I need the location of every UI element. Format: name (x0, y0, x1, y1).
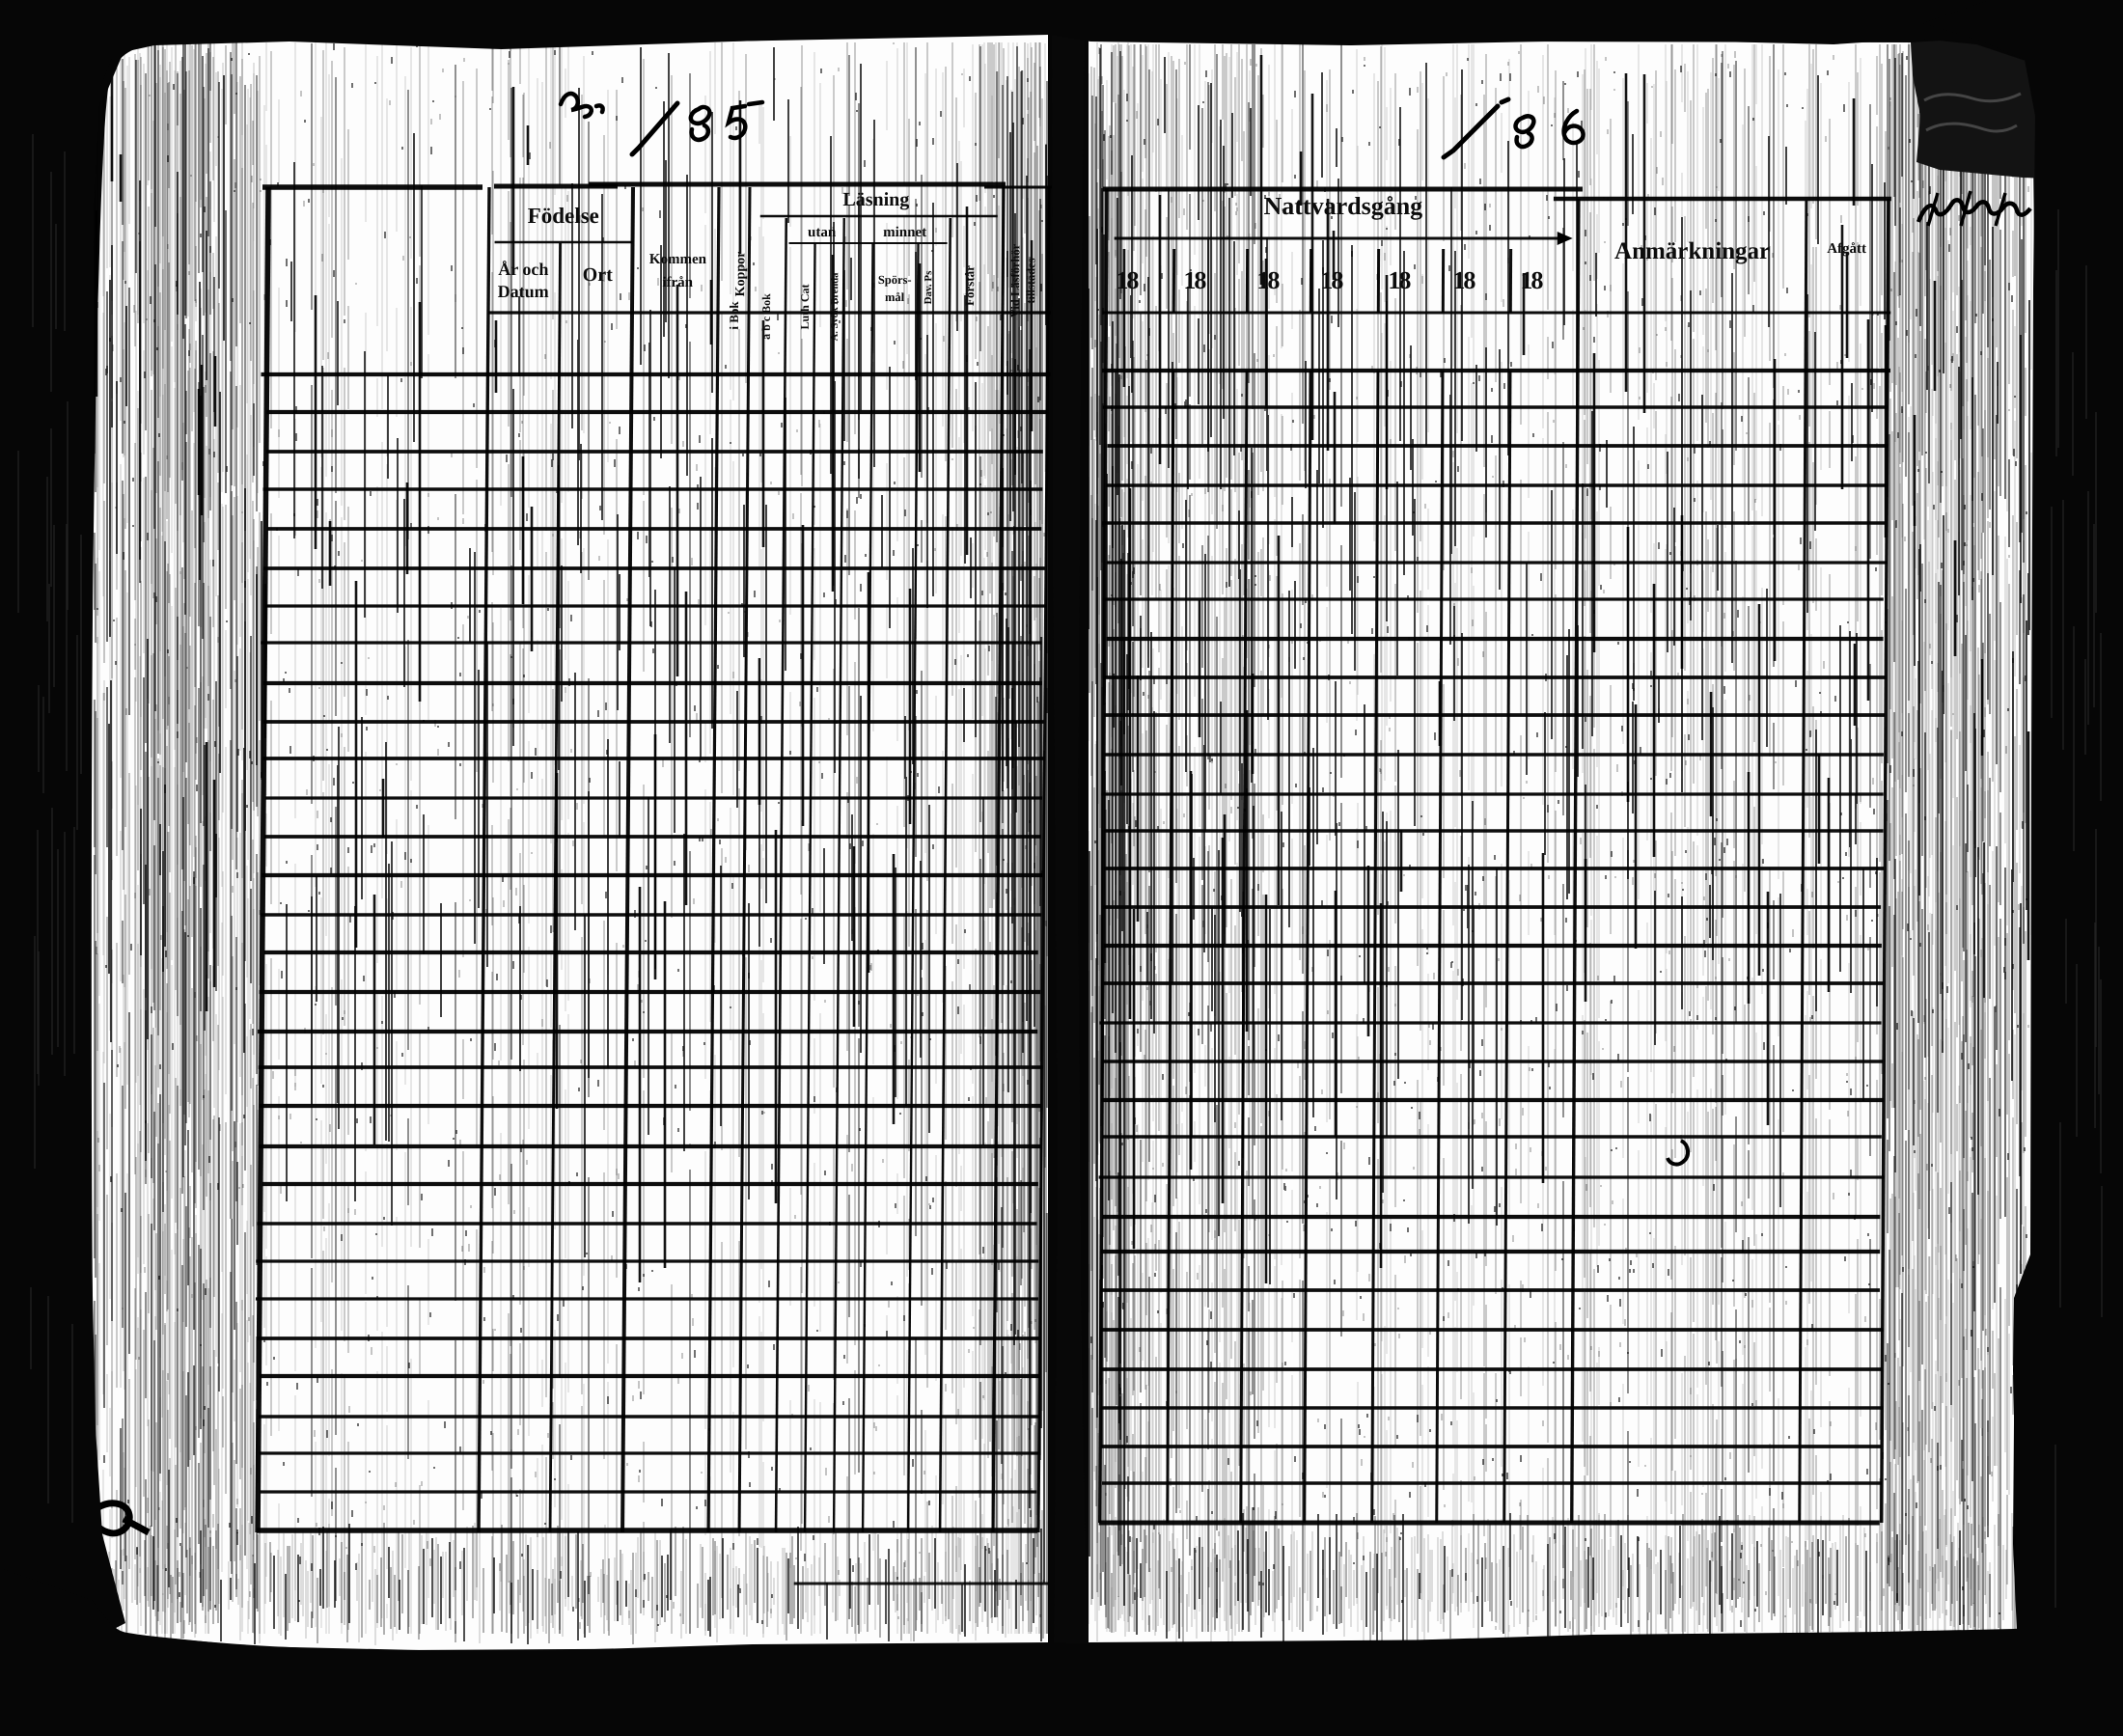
svg-text:Dav. Ps: Dav. Ps (923, 270, 934, 305)
svg-text:mål: mål (885, 290, 905, 304)
svg-text:Afgått: Afgått (1827, 241, 1866, 257)
svg-text:Födelse: Födelse (528, 204, 599, 228)
svg-text:Ort: Ort (583, 264, 614, 286)
svg-text:i Bok: i Bok (727, 301, 741, 330)
svg-text:Läsning: Läsning (842, 189, 909, 210)
svg-text:utan: utan (808, 225, 837, 240)
svg-text:Luth Cat: Luth Cat (798, 284, 812, 329)
svg-text:A. Svök Brenda: A. Svök Brenda (830, 272, 841, 341)
svg-text:minnet: minnet (883, 225, 926, 240)
svg-text:18: 18 (1183, 266, 1206, 294)
svg-text:18: 18 (1116, 266, 1139, 294)
svg-text:Koppor: Koppor (733, 252, 748, 297)
svg-text:Vid Läsförhör: Vid Läsförhör (1008, 243, 1023, 317)
svg-text:tillstädes: tillstädes (1024, 258, 1037, 303)
svg-text:ifrån: ifrån (662, 275, 693, 290)
svg-text:Anmärkningar: Anmärkningar (1614, 238, 1770, 264)
svg-text:18: 18 (1520, 266, 1543, 294)
svg-text:Nattvardsgång: Nattvardsgång (1263, 192, 1422, 220)
svg-text:a b c Bok: a b c Bok (759, 293, 773, 340)
svg-text:18: 18 (1320, 266, 1343, 294)
svg-text:18: 18 (1452, 266, 1475, 294)
svg-text:År och: År och (498, 260, 548, 279)
svg-text:Kommen: Kommen (649, 252, 707, 267)
svg-text:18: 18 (1256, 266, 1280, 294)
svg-text:Förstår: Förstår (962, 265, 977, 306)
svg-text:Spörs-: Spörs- (878, 273, 912, 287)
svg-text:Datum: Datum (498, 282, 549, 301)
svg-text:18: 18 (1388, 266, 1411, 294)
